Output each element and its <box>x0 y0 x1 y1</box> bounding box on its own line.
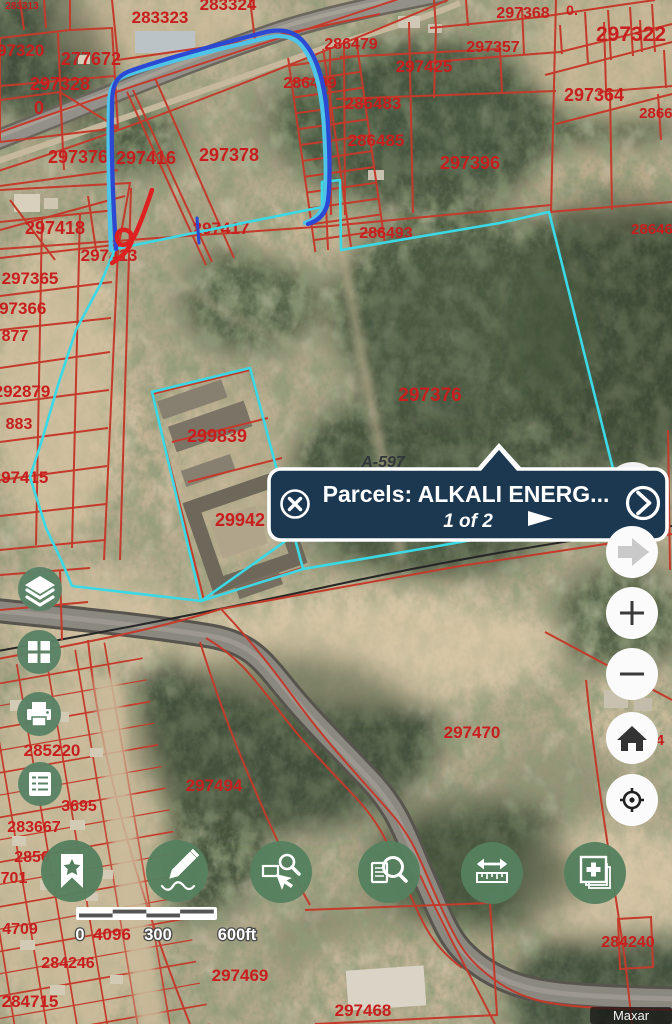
svg-text:283323: 283323 <box>132 8 189 27</box>
svg-text:297494: 297494 <box>186 776 243 795</box>
svg-text:286479: 286479 <box>324 36 377 53</box>
svg-text:286485: 286485 <box>348 131 405 150</box>
svg-text:297425: 297425 <box>396 57 453 76</box>
svg-text:297364: 297364 <box>564 85 624 105</box>
svg-text:883: 883 <box>6 416 33 433</box>
svg-text:283324: 283324 <box>200 0 257 14</box>
svg-text:299839: 299839 <box>187 426 247 446</box>
svg-text:4096: 4096 <box>93 925 131 944</box>
svg-text:297376: 297376 <box>48 147 108 167</box>
svg-text:297415: 297415 <box>0 468 48 487</box>
svg-text:297416: 297416 <box>116 148 176 168</box>
svg-text:297322: 297322 <box>596 23 666 46</box>
svg-text:600ft: 600ft <box>218 926 257 944</box>
svg-text:284240: 284240 <box>601 934 654 951</box>
svg-text:297418: 297418 <box>25 218 85 238</box>
svg-text:Maxar: Maxar <box>613 1008 650 1023</box>
svg-text:4709: 4709 <box>2 921 38 938</box>
svg-text:297357: 297357 <box>466 39 519 56</box>
svg-text:3695: 3695 <box>61 798 97 815</box>
svg-text:701: 701 <box>1 870 28 887</box>
svg-text:286483: 286483 <box>345 94 402 113</box>
svg-text:292879: 292879 <box>0 382 50 401</box>
svg-text:297365: 297365 <box>2 269 59 288</box>
svg-text:1 of 2: 1 of 2 <box>443 511 493 532</box>
svg-text:297320: 297320 <box>0 41 44 60</box>
svg-text:277672: 277672 <box>61 49 121 69</box>
svg-text:28646: 28646 <box>631 221 672 238</box>
svg-text:Parcels: ALKALI ENERG...: Parcels: ALKALI ENERG... <box>323 481 610 507</box>
svg-text:297470: 297470 <box>444 723 501 742</box>
svg-text:284246: 284246 <box>41 955 94 972</box>
svg-text:283313: 283313 <box>5 1 39 12</box>
svg-text:284715: 284715 <box>2 992 59 1011</box>
svg-text:283667: 283667 <box>7 819 60 836</box>
svg-text:297468: 297468 <box>335 1001 392 1020</box>
svg-text:297378: 297378 <box>199 145 259 165</box>
svg-text:0: 0 <box>75 926 84 944</box>
svg-text:0: 0 <box>34 98 44 118</box>
svg-text:297376: 297376 <box>398 385 461 406</box>
svg-text:28664: 28664 <box>639 105 672 122</box>
svg-text:297469: 297469 <box>212 966 269 985</box>
svg-text:0.: 0. <box>566 2 578 18</box>
svg-text:29942: 29942 <box>215 510 265 530</box>
svg-text:297328: 297328 <box>30 74 90 94</box>
svg-text:286499: 286499 <box>283 75 336 92</box>
svg-text:285220: 285220 <box>24 741 81 760</box>
svg-text:297368: 297368 <box>496 5 549 22</box>
svg-text:297396: 297396 <box>440 153 500 173</box>
svg-text:877: 877 <box>2 328 29 345</box>
svg-text:297366: 297366 <box>0 299 46 318</box>
svg-text:300: 300 <box>144 926 172 944</box>
